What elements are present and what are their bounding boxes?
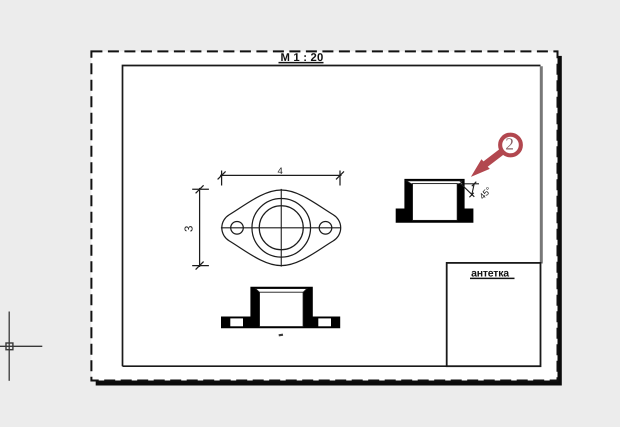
svg-text:3: 3 xyxy=(184,226,196,232)
svg-text:2: 2 xyxy=(505,135,514,154)
svg-text:4: 4 xyxy=(277,166,282,177)
